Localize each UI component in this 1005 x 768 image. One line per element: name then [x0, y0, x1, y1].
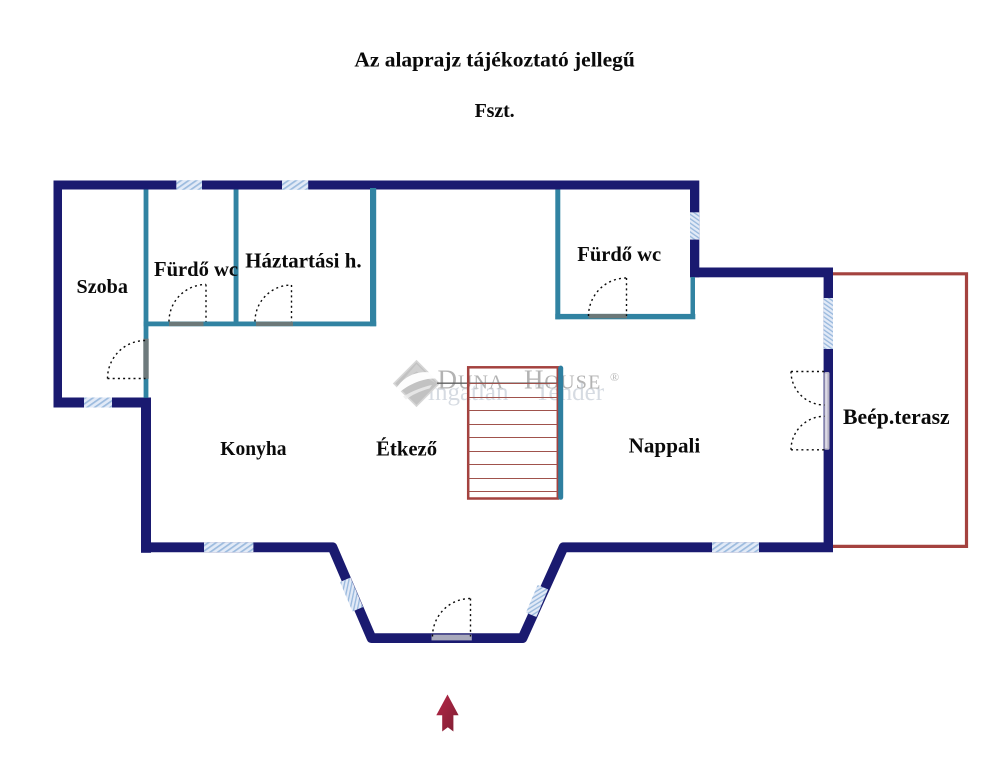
- svg-text:Szoba: Szoba: [77, 276, 128, 298]
- svg-text:Fürdő wc: Fürdő wc: [154, 259, 238, 281]
- svg-text:Háztartási h.: Háztartási h.: [245, 249, 361, 273]
- svg-text:Beép.terasz: Beép.terasz: [843, 405, 950, 429]
- svg-text:Fürdő wc: Fürdő wc: [577, 244, 661, 266]
- svg-text:Étkező: Étkező: [376, 437, 437, 460]
- svg-text:Konyha: Konyha: [220, 439, 286, 460]
- svg-text:Az alaprajz tájékoztató jelleg: Az alaprajz tájékoztató jellegű: [354, 48, 634, 72]
- svg-text:Fszt.: Fszt.: [475, 100, 515, 122]
- svg-text:Nappali: Nappali: [629, 434, 701, 458]
